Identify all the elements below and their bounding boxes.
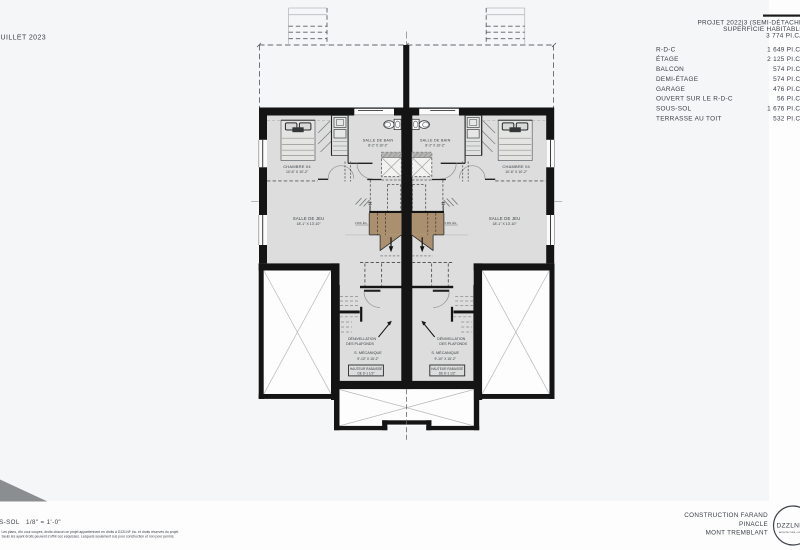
- svg-text:Seuls les ayant droits peuvent: Seuls les ayant droits peuvent s'offrir …: [2, 534, 175, 538]
- svg-text:3 774 PI.CA.: 3 774 PI.CA.: [766, 33, 800, 40]
- svg-text:DES PLAFONDS: DES PLAFONDS: [346, 342, 374, 346]
- svg-text:DÉNIVELLATION: DÉNIVELLATION: [348, 336, 376, 341]
- svg-text:574 PI.CA.: 574 PI.CA.: [773, 76, 800, 83]
- svg-text:TERRASSE AU TOIT: TERRASSE AU TOIT: [656, 116, 722, 123]
- svg-text:S. MÉCANIQUE: S. MÉCANIQUE: [354, 350, 382, 355]
- svg-text:18'-1" X 13'-10": 18'-1" X 13'-10": [297, 222, 322, 226]
- svg-text:18'-1" X 13'-10": 18'-1" X 13'-10": [493, 222, 518, 226]
- svg-text:DE 6'-1 1/2": DE 6'-1 1/2": [439, 372, 456, 376]
- svg-text:9'-10" X 15'-2": 9'-10" X 15'-2": [434, 357, 456, 361]
- svg-text:DE 6'-1 1/2": DE 6'-1 1/2": [358, 372, 375, 376]
- svg-text:532 PI.CA.: 532 PI.CA.: [773, 116, 800, 123]
- svg-text:8'-2" X 10'-2": 8'-2" X 10'-2": [425, 144, 445, 148]
- svg-text:SOUS-SOL 1/8" = 1'-0": SOUS-SOL 1/8" = 1'-0": [0, 519, 61, 526]
- svg-text:HAUTEUR RABAISSÉ: HAUTEUR RABAISSÉ: [350, 366, 382, 371]
- svg-text:PROJET 2022|3 (SEMI-DÉTACHÉ): PROJET 2022|3 (SEMI-DÉTACHÉ): [697, 17, 800, 26]
- svg-text:1 676 PI.CA.: 1 676 PI.CA.: [767, 106, 800, 113]
- svg-text:476 PI.CA.: 476 PI.CA.: [773, 86, 800, 93]
- svg-text:OUVERT SUR LE R-D-C: OUVERT SUR LE R-D-C: [656, 96, 733, 103]
- svg-text:S. MÉCANIQUE: S. MÉCANIQUE: [431, 350, 459, 355]
- svg-text:Les plans, d'in cour coupes, d: Les plans, d'in cour coupes, droits chac…: [2, 530, 180, 534]
- svg-text:1 649 PI.CA.: 1 649 PI.CA.: [767, 46, 800, 53]
- svg-text:10'-6" X 10'-2": 10'-6" X 10'-2": [505, 170, 528, 174]
- svg-text:SOUS-SOL: SOUS-SOL: [656, 106, 692, 113]
- svg-text:9'-10" X 15'-2": 9'-10" X 15'-2": [357, 357, 379, 361]
- svg-text:CHAMBRE 04: CHAMBRE 04: [283, 164, 311, 169]
- svg-text:CONSTRUCTION FARAND: CONSTRUCTION FARAND: [684, 512, 768, 519]
- svg-text:SALLE DE JEU: SALLE DE JEU: [489, 216, 521, 221]
- svg-text:10'-6" X 10'-2": 10'-6" X 10'-2": [286, 170, 309, 174]
- svg-text:BALCON: BALCON: [656, 66, 684, 73]
- svg-text:MONT TREMBLANT: MONT TREMBLANT: [706, 529, 768, 536]
- svg-text:56 PI.CA.: 56 PI.CA.: [777, 96, 800, 103]
- svg-text:ARCHITECTURE + DE: ARCHITECTURE + DE: [779, 531, 800, 534]
- svg-text:PINACLE: PINACLE: [739, 521, 768, 528]
- svg-text:HAUTEUR RABAISSÉ: HAUTEUR RABAISSÉ: [431, 366, 463, 371]
- svg-text:R-D-C: R-D-C: [656, 46, 676, 53]
- svg-text:CHAMBRE 04: CHAMBRE 04: [502, 164, 530, 169]
- svg-text:2 125 PI.CA.: 2 125 PI.CA.: [767, 56, 800, 63]
- svg-text:DES PLAFONDS: DES PLAFONDS: [439, 342, 467, 346]
- svg-text:3 JUILLET 2023: 3 JUILLET 2023: [0, 35, 46, 42]
- svg-text:SALLE DE BAIN: SALLE DE BAIN: [363, 139, 394, 143]
- svg-text:GARAGE: GARAGE: [656, 86, 685, 93]
- svg-text:SALLE DE BAIN: SALLE DE BAIN: [420, 139, 451, 143]
- svg-text:DÉNIVELLATION: DÉNIVELLATION: [437, 336, 465, 341]
- svg-text:DEMI-ÉTAGE: DEMI-ÉTAGE: [656, 74, 698, 83]
- svg-text:574 PI.CA.: 574 PI.CA.: [773, 66, 800, 73]
- svg-text:ÉTAGE: ÉTAGE: [656, 54, 679, 63]
- svg-text:8'-2" X 10'-2": 8'-2" X 10'-2": [368, 144, 388, 148]
- svg-text:SALLE DE JEU: SALLE DE JEU: [293, 216, 325, 221]
- svg-text:DZZLND: DZZLND: [777, 523, 800, 530]
